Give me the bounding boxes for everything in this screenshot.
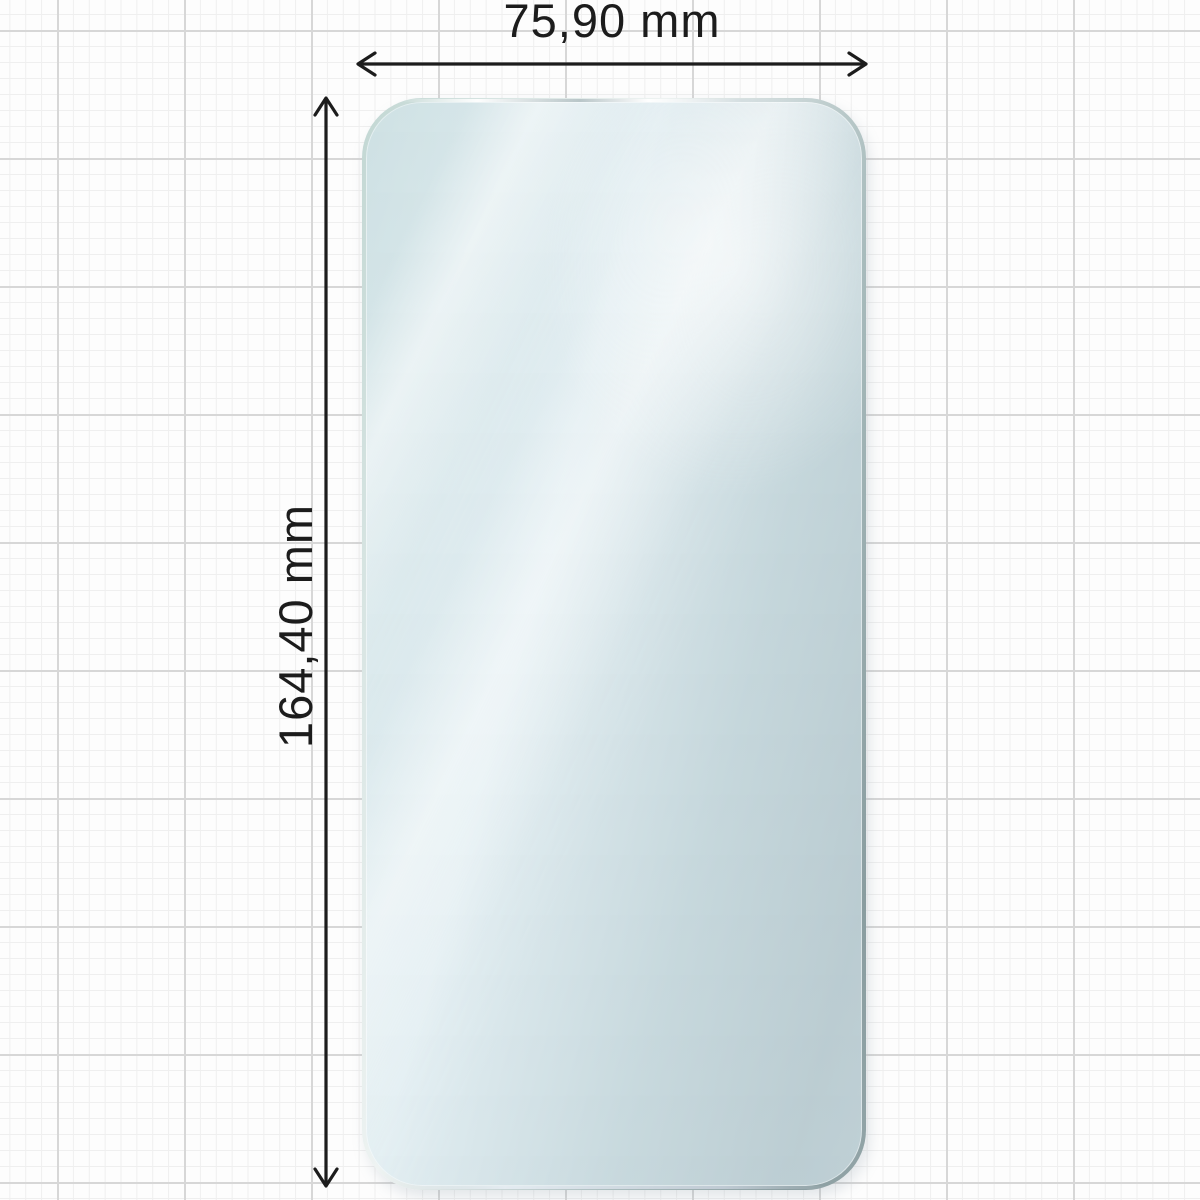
screen-protector xyxy=(362,98,866,1190)
graph-paper-background: 75,90 mm 164,40 mm xyxy=(0,0,1200,1200)
height-dimension-arrow-icon xyxy=(310,92,342,1192)
screen-protector-surface xyxy=(366,102,862,1186)
width-dimension-arrow-icon xyxy=(352,48,872,80)
width-dimension-label: 75,90 mm xyxy=(352,0,872,48)
